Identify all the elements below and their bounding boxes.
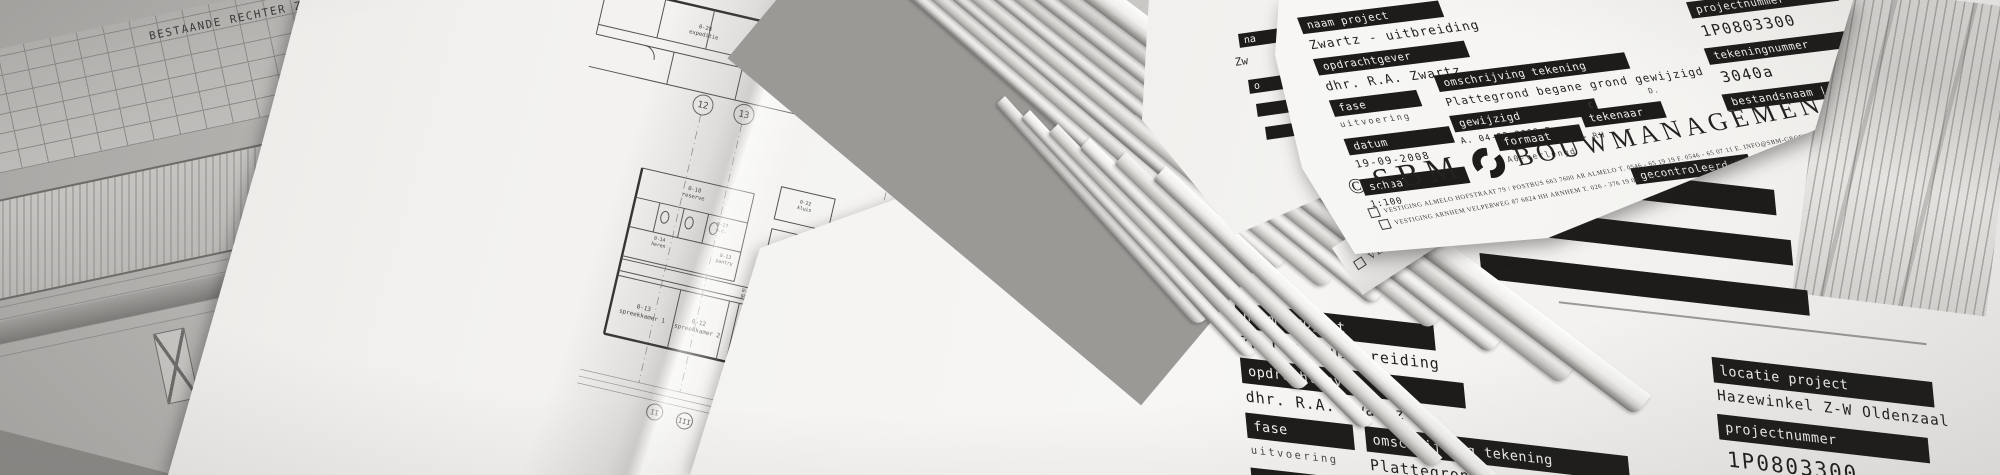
checkbox-icon	[1367, 207, 1381, 218]
photo-architectural-drawings: BESTAANDE RECHTER ZIJGEVEL	[0, 0, 2000, 475]
datum-label: datum	[1344, 126, 1455, 155]
checkbox-icon	[1378, 219, 1392, 230]
top-sheet: naam project Zwartz - uitbreiding opdrac…	[0, 0, 2000, 475]
tekeningnummer-value: 3040a	[1718, 62, 1777, 86]
title-block-top: naam project Zwartz - uitbreiding opdrac…	[1030, 0, 2000, 290]
sbm-logo-icon	[1465, 143, 1512, 181]
revision-d: D.	[1647, 85, 1661, 95]
copyright-icon: ©	[1343, 172, 1370, 200]
top-sheet-wrap: naam project Zwartz - uitbreiding opdrac…	[0, 0, 2000, 475]
